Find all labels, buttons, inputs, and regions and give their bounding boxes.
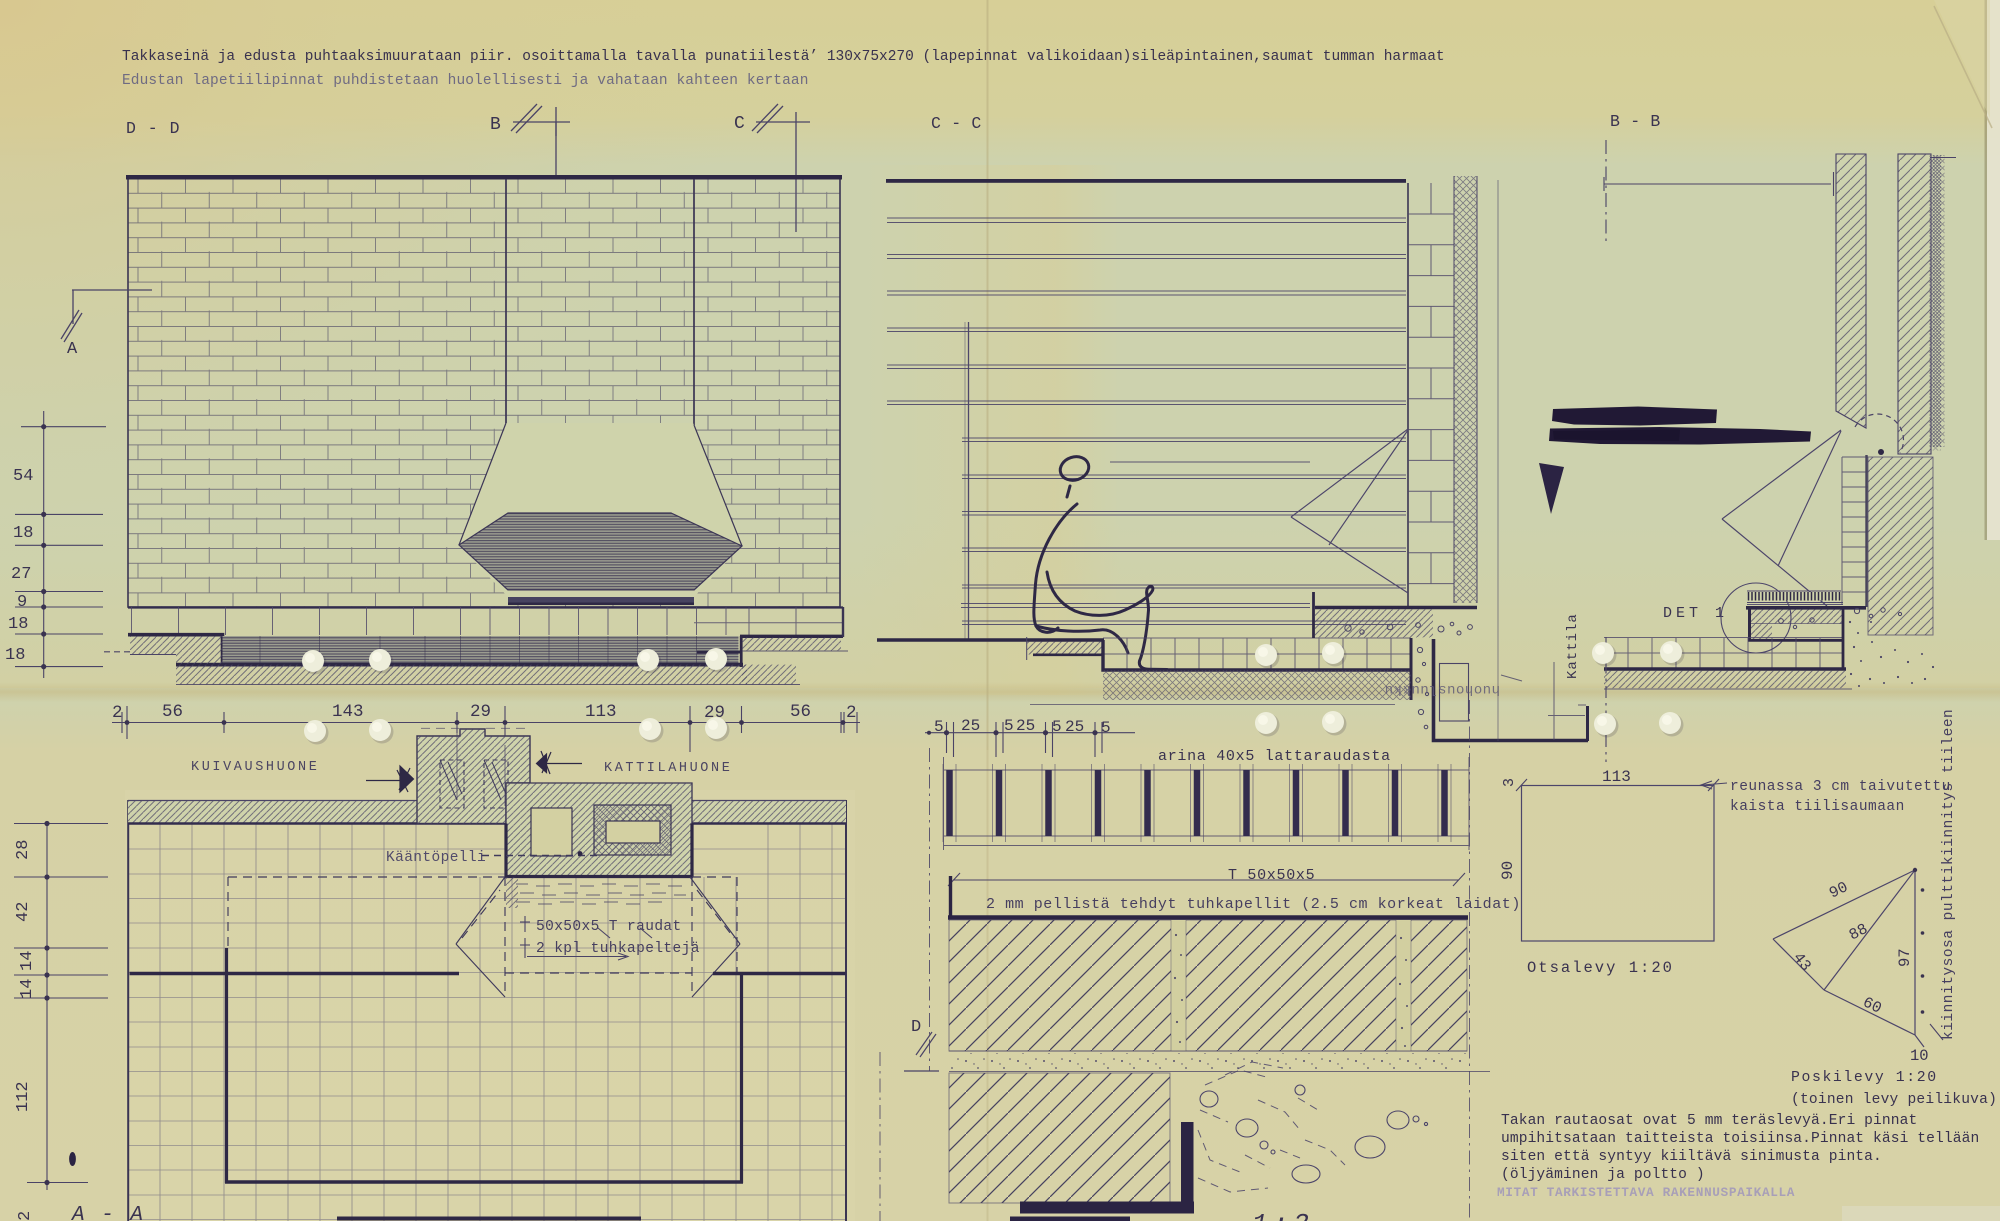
svg-text:113: 113 <box>585 702 617 722</box>
svg-text:D: D <box>911 1018 921 1037</box>
svg-text:Kääntöpelli: Kääntöpelli <box>386 850 486 866</box>
svg-text:10: 10 <box>1910 1047 1929 1065</box>
svg-text:5: 5 <box>1052 718 1062 736</box>
svg-text:5: 5 <box>1004 717 1014 735</box>
svg-text:umpihitsataan taitteista toisi: umpihitsataan taitteista toisiinsa.Pinna… <box>1501 1131 1979 1147</box>
svg-text:25: 25 <box>961 717 980 735</box>
svg-text:Takan rautaosat ovat 5 mm terä: Takan rautaosat ovat 5 mm teräslevyä.Eri… <box>1501 1113 1917 1129</box>
svg-text:T 50x50x5: T 50x50x5 <box>1228 867 1315 884</box>
svg-text:kaista tiilisaumaan: kaista tiilisaumaan <box>1730 799 1905 815</box>
svg-text:56: 56 <box>162 702 183 722</box>
svg-text:2 kpl tuhkapeltejä: 2 kpl tuhkapeltejä <box>536 941 700 957</box>
svg-text:Poskilevy 1:20: Poskilevy 1:20 <box>1791 1070 1938 1086</box>
svg-text:29: 29 <box>470 702 491 722</box>
svg-text:18: 18 <box>8 615 28 634</box>
svg-text:(toinen levy peilikuva): (toinen levy peilikuva) <box>1791 1092 1997 1108</box>
svg-text:5: 5 <box>934 718 944 736</box>
svg-text:D - D: D - D <box>126 119 181 138</box>
svg-text:DET 1: DET 1 <box>1663 605 1728 622</box>
svg-text:(öljyäminen ja poltto ): (öljyäminen ja poltto ) <box>1501 1167 1705 1183</box>
svg-text:B: B <box>490 115 501 135</box>
svg-text:56: 56 <box>790 702 811 722</box>
svg-text:28: 28 <box>14 840 33 860</box>
svg-text:reunassa 3 cm taivutettu: reunassa 3 cm taivutettu <box>1730 779 1951 795</box>
svg-text:1:2: 1:2 <box>1252 1209 1314 1221</box>
svg-text:143: 143 <box>332 702 364 722</box>
svg-text:14: 14 <box>18 951 37 971</box>
svg-text:KATTILAHUONE: KATTILAHUONE <box>604 761 732 776</box>
svg-text:5: 5 <box>1101 719 1111 737</box>
svg-text:14: 14 <box>18 979 37 999</box>
svg-text:Edustan lapetiilipinnat puhdis: Edustan lapetiilipinnat puhdistetaan huo… <box>122 73 809 89</box>
svg-text:97: 97 <box>1896 948 1914 967</box>
svg-text:arina 40x5 lattaraudasta: arina 40x5 lattaraudasta <box>1158 748 1391 765</box>
svg-text:42: 42 <box>14 902 33 922</box>
svg-text:Takkaseinä ja edusta puhtaaksi: Takkaseinä ja edusta puhtaaksimuurataan … <box>122 49 1445 65</box>
svg-text:2: 2 <box>16 1211 35 1221</box>
svg-text:18: 18 <box>13 524 33 543</box>
svg-text:2: 2 <box>846 703 857 723</box>
svg-text:huohousluukku: huohousluukku <box>1384 681 1500 697</box>
svg-text:54: 54 <box>13 467 33 486</box>
svg-text:B - B: B - B <box>1610 112 1661 131</box>
svg-text:90: 90 <box>1499 861 1517 880</box>
svg-text:C - C: C - C <box>931 114 982 133</box>
svg-text:kiinnitysosa pulttikiinnitys t: kiinnitysosa pulttikiinnitys tiileen <box>1941 709 1957 1040</box>
svg-text:Kattila: Kattila <box>1565 613 1581 679</box>
svg-text:A: A <box>67 340 78 359</box>
svg-text:KUIVAUSHUONE: KUIVAUSHUONE <box>191 760 319 775</box>
svg-text:C: C <box>734 114 745 134</box>
svg-text:MITAT TARKISTETTAVA RAKENNUSPA: MITAT TARKISTETTAVA RAKENNUSPAIKALLA <box>1497 1185 1795 1200</box>
svg-text:18: 18 <box>5 646 25 665</box>
svg-text:A - A: A - A <box>70 1204 145 1221</box>
svg-text:3: 3 <box>1501 778 1518 787</box>
svg-text:27: 27 <box>11 565 31 584</box>
svg-text:25: 25 <box>1016 717 1035 735</box>
svg-text:9: 9 <box>17 593 27 612</box>
svg-text:25: 25 <box>1065 718 1084 736</box>
svg-text:Otsalevy 1:20: Otsalevy 1:20 <box>1527 959 1674 977</box>
svg-text:2: 2 <box>112 703 123 723</box>
svg-text:112: 112 <box>14 1081 33 1112</box>
svg-text:siten että syntyy kiiltävä sin: siten että syntyy kiiltävä sinimusta pin… <box>1501 1149 1882 1165</box>
svg-text:113: 113 <box>1602 768 1631 786</box>
svg-text:2 mm pellistä tehdyt tuhkapell: 2 mm pellistä tehdyt tuhkapellit (2.5 cm… <box>986 896 1521 913</box>
svg-text:50x50x5 T raudat: 50x50x5 T raudat <box>536 919 682 935</box>
